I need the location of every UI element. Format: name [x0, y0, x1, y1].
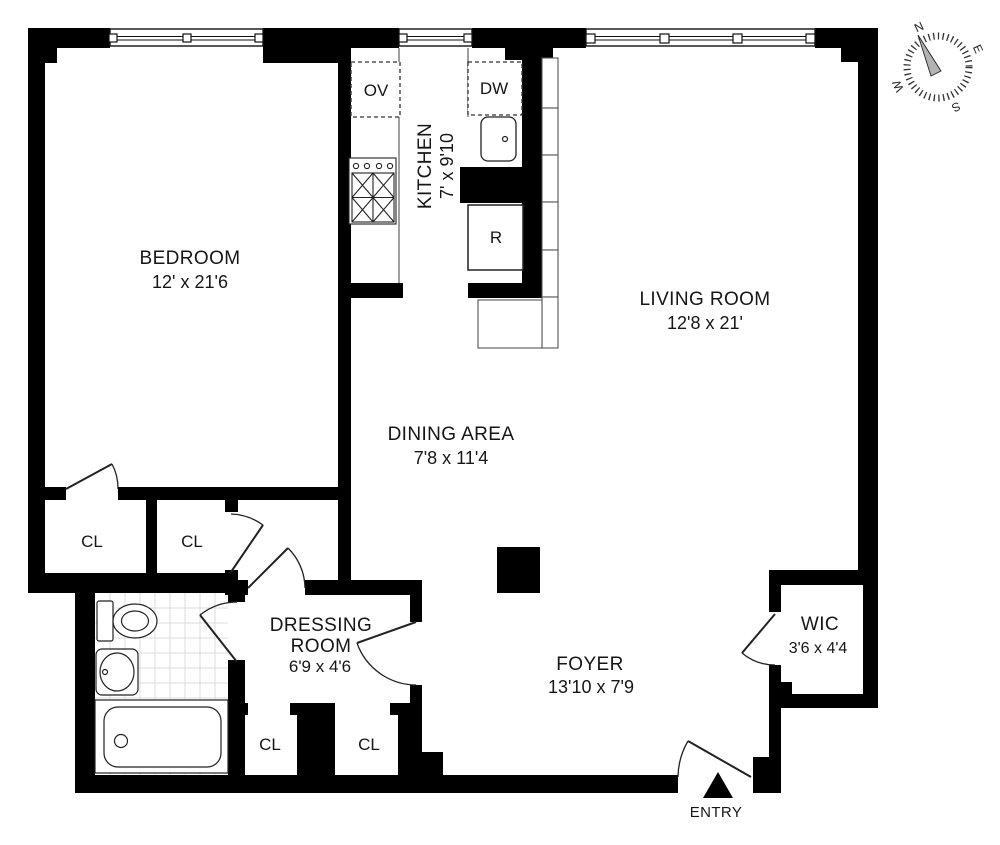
- floor-plan-page: N E S W BEDROOM 12' x 21'6 KITCHEN 7' x …: [0, 0, 1000, 845]
- kitchen-dims: 7' x 9'10: [437, 133, 457, 199]
- dining-area-label: DINING AREA: [388, 424, 515, 445]
- wic-dims: 3'6 x 4'4: [789, 640, 848, 657]
- windows: [109, 29, 815, 46]
- entry-arrow-icon: [703, 772, 733, 798]
- living-room-window: [586, 29, 815, 46]
- stove: [349, 158, 396, 224]
- dressing-room-dims: 6'9 x 4'6: [289, 657, 351, 676]
- bedroom-closet-door: [66, 464, 118, 489]
- closet4-label: CL: [358, 735, 380, 754]
- dressing-room-label-line2: ROOM: [291, 636, 352, 657]
- foyer-dims: 13'10 x 7'9: [548, 677, 634, 697]
- kitchen-label: KITCHEN: [415, 123, 436, 209]
- dining-area-dims: 7'8 x 11'4: [414, 448, 489, 468]
- kitchen-sink: [481, 117, 516, 161]
- living-room-dims: 12'8 x 21': [667, 313, 743, 333]
- floor-plan-canvas: N E S W BEDROOM 12' x 21'6 KITCHEN 7' x …: [0, 0, 1000, 845]
- bedroom-window: [109, 29, 263, 46]
- wic-door: [742, 614, 775, 665]
- oven-label: OV: [364, 81, 389, 100]
- toilet: [97, 601, 157, 641]
- closet2-door: [231, 514, 263, 572]
- bedroom-dims: 12' x 21'6: [152, 272, 228, 292]
- closet2-label: CL: [181, 532, 203, 551]
- compass-needle-icon: [918, 35, 941, 76]
- compass-north-label: N: [912, 19, 926, 35]
- compass-east-label: E: [970, 42, 986, 55]
- dressing-room-north-door: [248, 548, 305, 588]
- foyer-label: FOYER: [556, 654, 623, 675]
- entry-door: [678, 741, 751, 777]
- refrigerator-label: R: [490, 228, 502, 247]
- dressing-room-label-line1: DRESSING: [270, 615, 372, 636]
- compass-south-label: S: [949, 99, 962, 115]
- closet1-label: CL: [81, 532, 103, 551]
- compass-rose: N E S W: [889, 19, 986, 115]
- living-room-label: LIVING ROOM: [639, 289, 770, 310]
- bathtub: [95, 700, 228, 773]
- closet3-label: CL: [259, 735, 281, 754]
- wic-label: WIC: [801, 614, 839, 635]
- dishwasher-label: DW: [480, 79, 508, 98]
- bedroom-label: BEDROOM: [140, 248, 241, 269]
- entry-label: ENTRY: [690, 804, 743, 821]
- bathroom-sink: [96, 649, 138, 695]
- kitchen-window: [399, 29, 472, 46]
- compass-west-label: W: [889, 77, 907, 94]
